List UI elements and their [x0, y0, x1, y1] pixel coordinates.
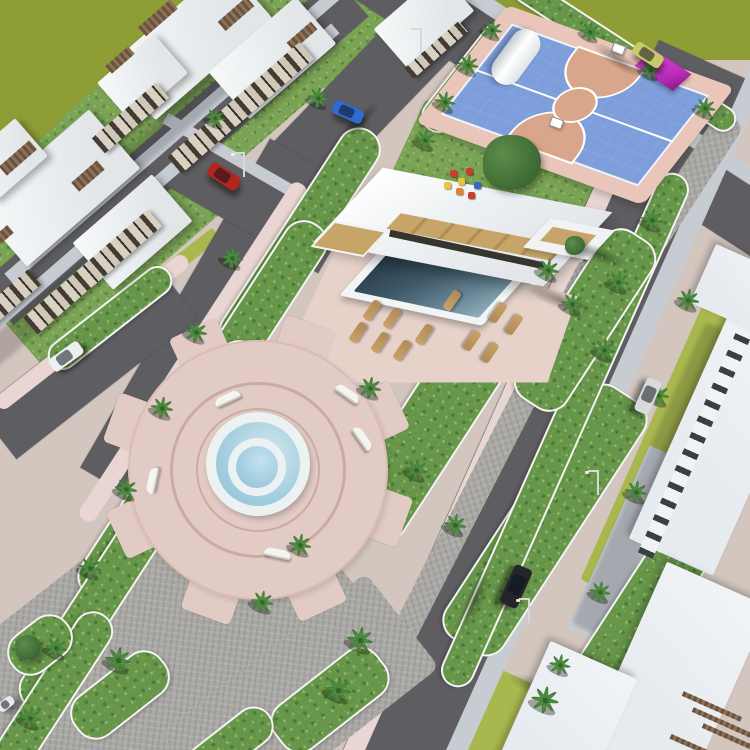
- playground-equipment: [466, 168, 473, 175]
- playground-equipment: [458, 178, 465, 185]
- playground-equipment: [450, 170, 457, 177]
- street-lamp: [420, 28, 422, 53]
- playground-equipment: [456, 188, 463, 195]
- street-lamp: [528, 598, 530, 623]
- street-lamp: [243, 152, 245, 177]
- tree: [15, 635, 41, 660]
- fountain: [206, 412, 310, 516]
- scene: [0, 0, 750, 750]
- fountain-inner-water: [236, 446, 278, 488]
- playground-equipment: [444, 182, 451, 189]
- street-lamp: [597, 470, 599, 495]
- playground-equipment: [474, 182, 481, 189]
- playground-equipment: [468, 192, 475, 199]
- fountain-plaza: [128, 340, 388, 600]
